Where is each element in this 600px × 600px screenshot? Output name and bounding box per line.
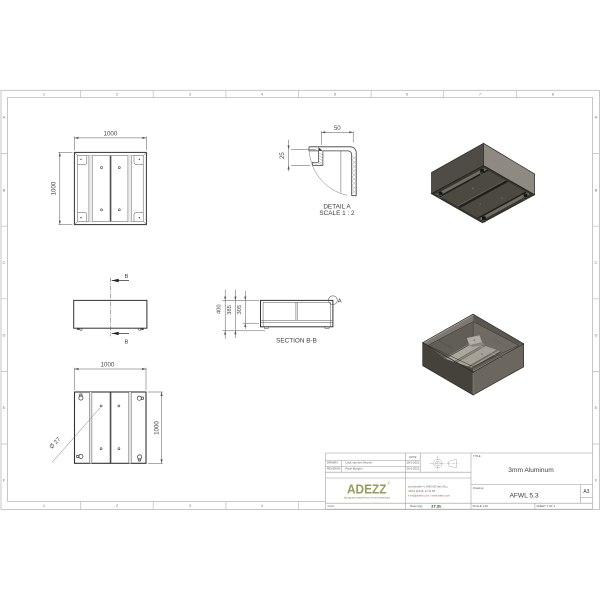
- svg-text:A3: A3: [583, 489, 589, 495]
- svg-text:D: D: [595, 333, 598, 338]
- svg-text:50: 50: [334, 125, 341, 132]
- svg-text:C: C: [3, 260, 6, 265]
- svg-text:E: E: [595, 405, 598, 410]
- svg-text:A: A: [338, 299, 342, 305]
- svg-text:B: B: [124, 274, 128, 280]
- svg-text:Pauri Bongen: Pauri Bongen: [346, 467, 363, 471]
- svg-text:DATE: DATE: [409, 455, 416, 459]
- svg-text:NATURAL AND DURABLE PRODUCTS F: NATURAL AND DURABLE PRODUCTS FOR PROFESS…: [344, 497, 391, 500]
- svg-text:E: E: [3, 405, 6, 410]
- svg-text:18-2-2021: 18-2-2021: [407, 461, 420, 465]
- svg-text:SCALE 1:20: SCALE 1:20: [473, 504, 489, 508]
- svg-text:27.31: 27.31: [431, 503, 442, 508]
- svg-text:Leemskuilen 4, 5463 AD Iden (N: Leemskuilen 4, 5463 AD Iden (NL).: [408, 485, 449, 489]
- svg-text:SECTION B-B: SECTION B-B: [276, 338, 317, 345]
- svg-text:A: A: [3, 115, 6, 120]
- svg-text:Mass (kg):: Mass (kg):: [410, 504, 423, 508]
- svg-text:26-3-2021: 26-3-2021: [407, 467, 420, 471]
- svg-text:TITLE: TITLE: [473, 454, 481, 458]
- svg-text:385: 385: [227, 305, 233, 315]
- svg-text:Luuk van den Heuvel: Luuk van den Heuvel: [346, 461, 373, 465]
- svg-text:25: 25: [279, 152, 286, 159]
- svg-text:B: B: [124, 339, 128, 345]
- svg-text:SCALE 1 : 2: SCALE 1 : 2: [319, 210, 355, 217]
- svg-text:B: B: [3, 188, 6, 193]
- svg-text:B: B: [595, 188, 598, 193]
- svg-text:t 0031 (0)413- 27 41 68.: t 0031 (0)413- 27 41 68.: [408, 489, 436, 493]
- svg-text:D: D: [3, 333, 6, 338]
- svg-text:1000: 1000: [101, 361, 115, 368]
- svg-text:SHEET 1 OF 1: SHEET 1 OF 1: [537, 504, 556, 508]
- svg-text:Drawing: Drawing: [473, 486, 484, 490]
- svg-text:3mm Aluminum: 3mm Aluminum: [508, 467, 554, 474]
- svg-text:1000: 1000: [104, 130, 118, 137]
- svg-text:A: A: [595, 115, 598, 120]
- svg-text:DRAWN: DRAWN: [327, 461, 337, 465]
- svg-text:ADEZZ: ADEZZ: [347, 481, 387, 496]
- svg-text:1000: 1000: [154, 421, 161, 435]
- svg-text:REVISION: REVISION: [327, 467, 340, 471]
- svg-text:C: C: [595, 260, 598, 265]
- svg-text:Color:: Color:: [328, 504, 336, 508]
- svg-text:400: 400: [217, 304, 223, 314]
- svg-text:305: 305: [237, 305, 243, 315]
- svg-text:AFWL 5.3: AFWL 5.3: [509, 493, 538, 500]
- svg-text:e info@adezz.com / www.adezz.c: e info@adezz.com / www.adezz.com: [408, 494, 450, 498]
- svg-text:1000: 1000: [50, 181, 57, 195]
